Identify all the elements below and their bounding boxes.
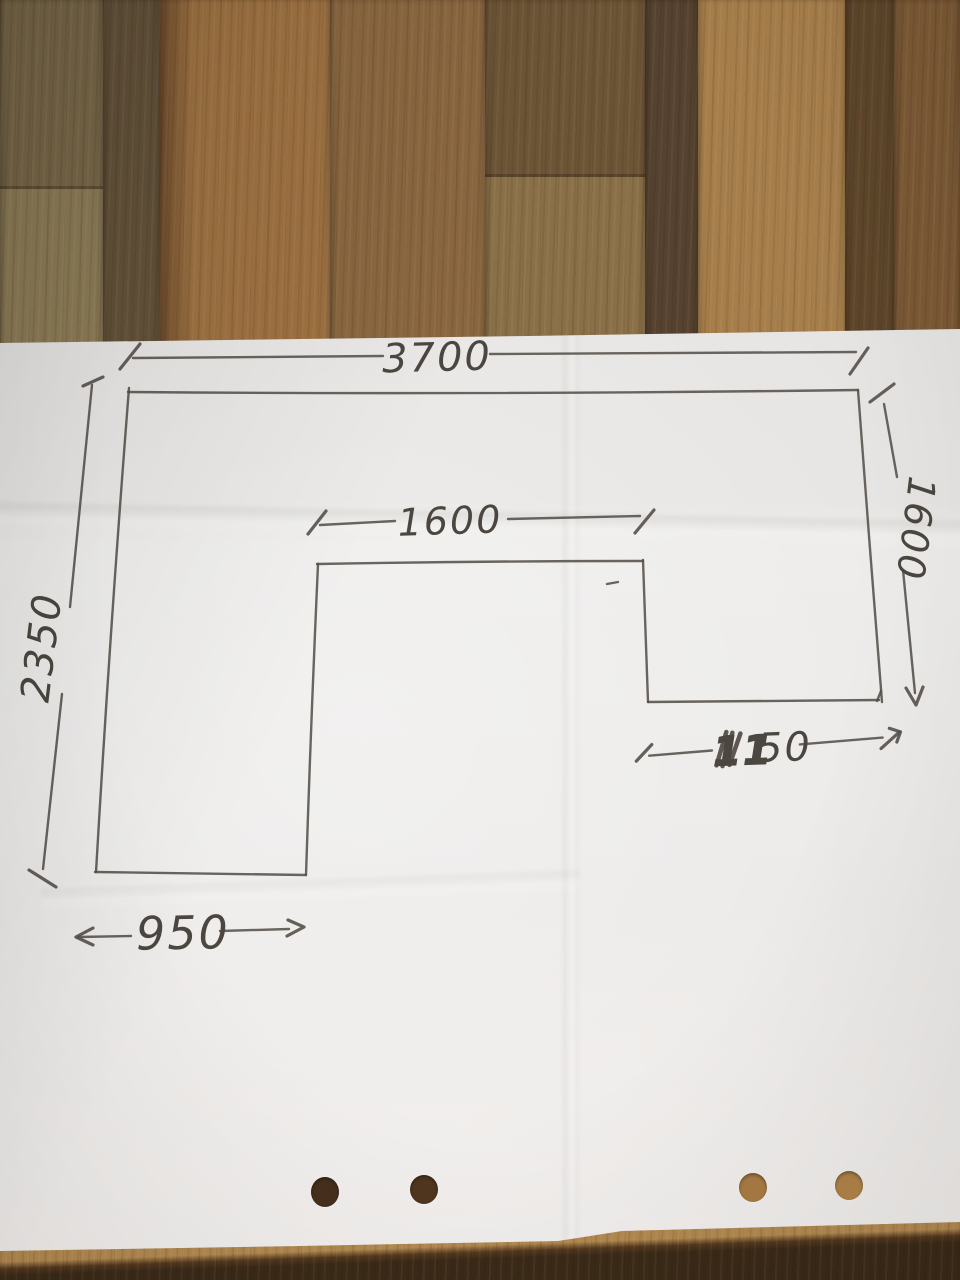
dim-label-left-height: 2350 <box>13 590 72 705</box>
outline-inner-top-edge <box>317 561 643 564</box>
dim-line <box>78 936 131 937</box>
dim-line <box>490 352 856 354</box>
dimension-inner-width: 1600 <box>308 497 654 545</box>
dim-line <box>903 570 915 693</box>
dim-tick <box>120 344 140 369</box>
dimension-top-width: 3700 <box>120 334 868 383</box>
dim-line <box>320 521 395 525</box>
dim-label-top-width: 3700 <box>382 334 493 383</box>
dim-tick <box>636 745 653 762</box>
outline-inner-right-edge <box>643 560 648 702</box>
photo-scene: 3700 2350 1600 <box>0 0 960 1280</box>
dim-tick <box>29 870 56 887</box>
dim-line <box>220 929 289 931</box>
dimension-bottom-left-width: 950 <box>76 905 304 961</box>
outline-top-edge <box>128 390 858 393</box>
stray-pencil-mark <box>607 582 618 584</box>
outline-left-edge <box>96 388 129 872</box>
floorplan-outline <box>95 388 882 875</box>
dim-label-inner-width: 1600 <box>397 497 503 545</box>
dim-line <box>884 404 897 477</box>
outline-bottom-left-edge <box>95 872 306 875</box>
dimension-right-leg-width: 11 50 <box>635 721 902 778</box>
dim-label-right-height: 1600 <box>888 474 944 583</box>
dim-tick <box>870 384 894 402</box>
dim-line <box>649 751 712 756</box>
dim-line <box>508 516 640 519</box>
dimension-left-height: 2350 <box>13 377 103 887</box>
outline-bottom-right-edge <box>648 700 879 702</box>
dim-line <box>43 694 62 869</box>
dim-line <box>800 738 883 745</box>
dim-label-bottom-left-width: 950 <box>135 905 230 961</box>
outline-right-edge <box>858 390 882 702</box>
outline-inner-left-edge <box>306 564 318 875</box>
dim-line <box>133 356 383 358</box>
dim-tick <box>308 511 326 534</box>
dim-tick <box>635 510 654 533</box>
dim-label-right-leg-rest: 50 <box>756 724 812 772</box>
dim-line <box>70 385 92 607</box>
dimension-right-height: 1600 <box>870 384 944 705</box>
